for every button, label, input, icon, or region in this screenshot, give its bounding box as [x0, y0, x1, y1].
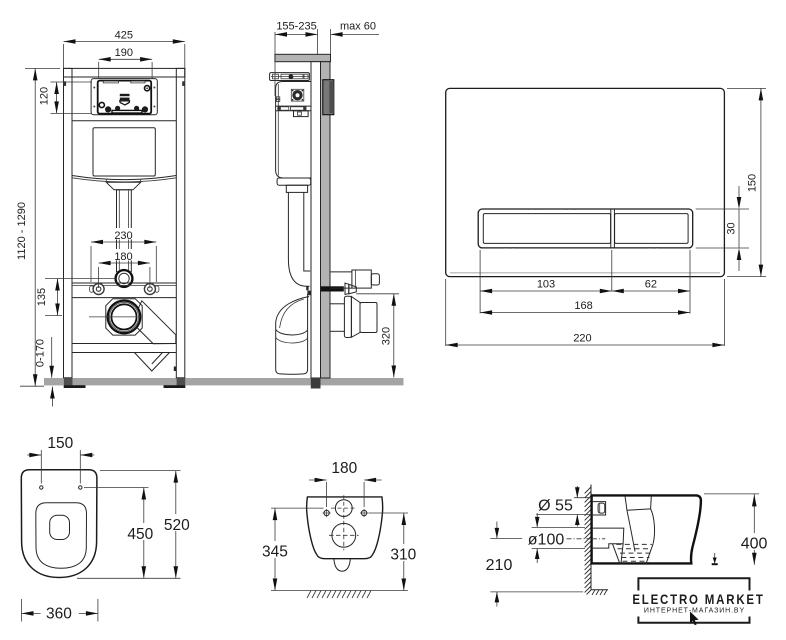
svg-text:168: 168 [574, 300, 592, 312]
svg-text:62: 62 [645, 279, 657, 291]
svg-text:230: 230 [114, 230, 132, 242]
svg-text:190: 190 [115, 47, 133, 59]
svg-text:150: 150 [47, 435, 73, 452]
svg-text:210: 210 [486, 557, 513, 574]
svg-text:1120 - 1290: 1120 - 1290 [16, 202, 28, 260]
svg-text:220: 220 [573, 332, 591, 344]
svg-text:360: 360 [46, 606, 72, 623]
svg-text:ø100: ø100 [528, 531, 565, 548]
svg-text:max 60: max 60 [340, 20, 376, 32]
svg-text:155-235: 155-235 [276, 20, 316, 32]
svg-text:120: 120 [39, 87, 51, 105]
svg-text:0-170: 0-170 [35, 339, 47, 367]
svg-text:Ø 55: Ø 55 [538, 498, 573, 515]
svg-text:400: 400 [741, 536, 768, 553]
svg-text:450: 450 [127, 526, 153, 543]
svg-text:30: 30 [725, 222, 737, 234]
svg-text:520: 520 [164, 517, 190, 534]
svg-text:ELECTRO MARKET: ELECTRO MARKET [632, 591, 764, 607]
svg-text:180: 180 [114, 251, 132, 263]
svg-text:150: 150 [746, 174, 758, 192]
svg-text:103: 103 [537, 279, 555, 291]
svg-text:425: 425 [115, 29, 133, 41]
svg-text:180: 180 [331, 460, 357, 477]
svg-text:ИНТЕРНЕТ-МАГАЗИН.BY: ИНТЕРНЕТ-МАГАЗИН.BY [644, 607, 745, 614]
svg-text:135: 135 [36, 288, 48, 306]
svg-text:345: 345 [262, 543, 288, 560]
svg-text:310: 310 [390, 546, 416, 563]
svg-text:320: 320 [381, 327, 393, 345]
